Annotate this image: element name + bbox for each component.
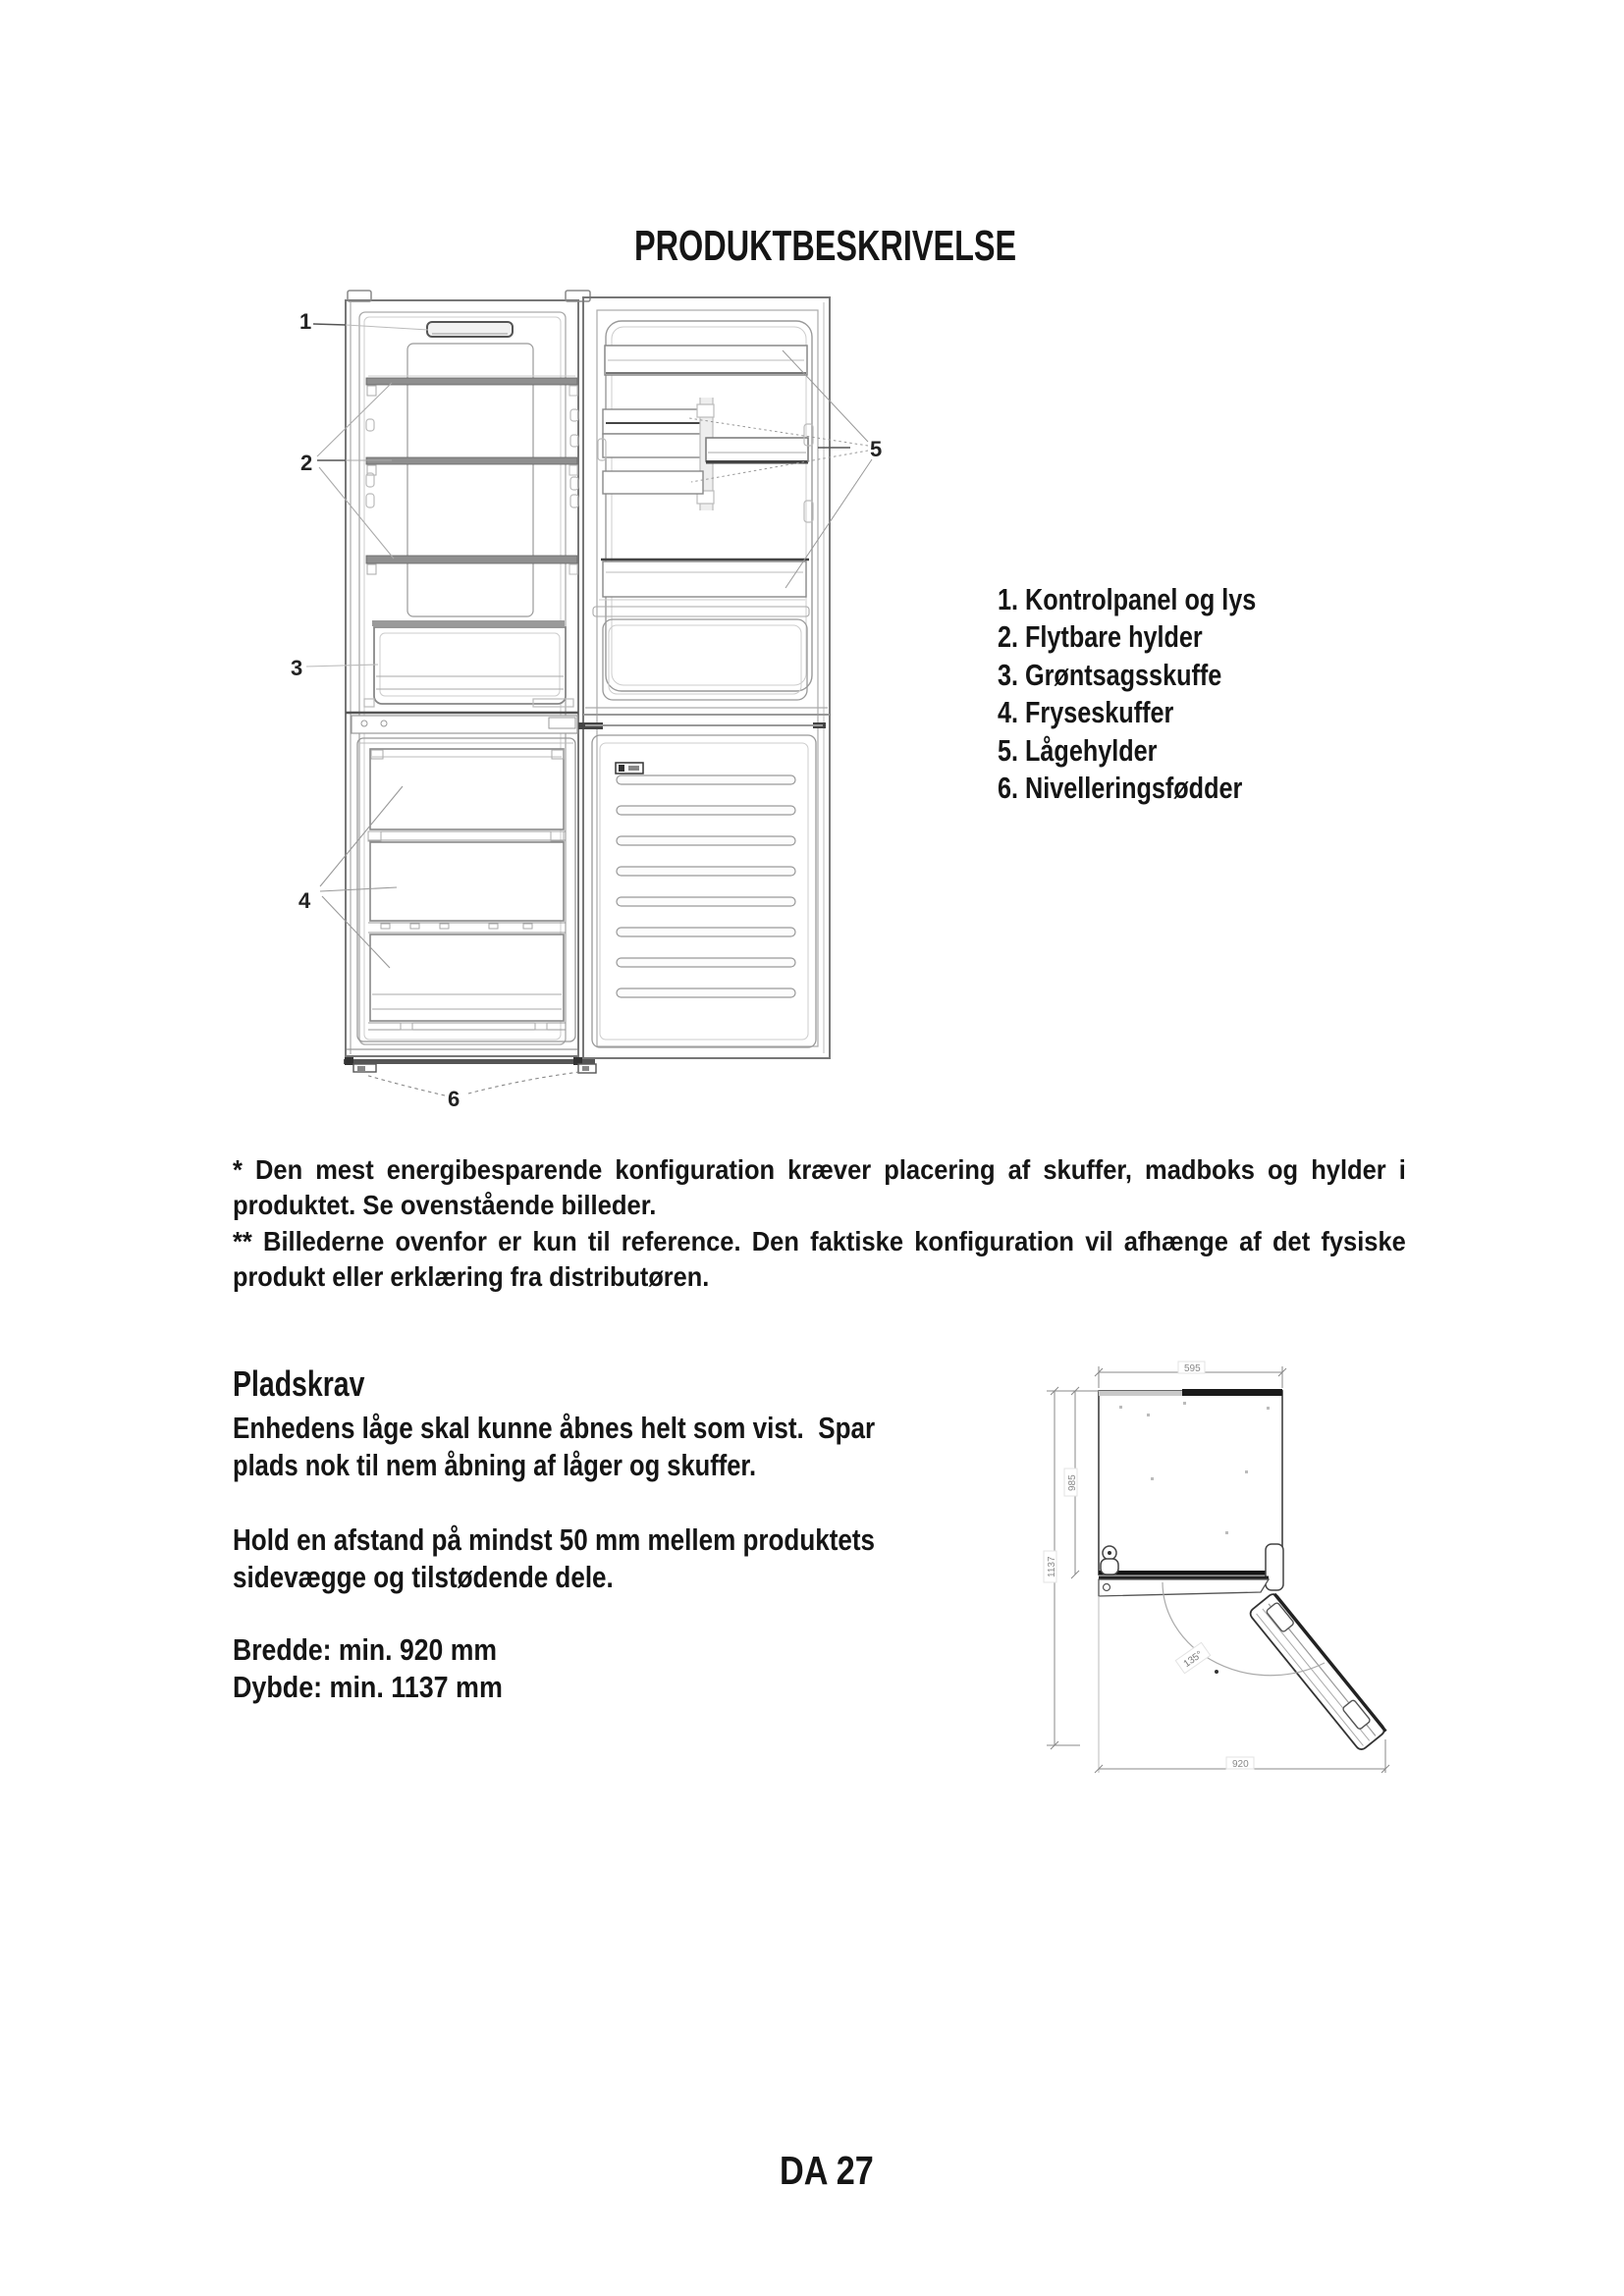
svg-text:985: 985 [1067, 1474, 1078, 1491]
svg-text:4: 4 [298, 888, 311, 913]
svg-text:1: 1 [299, 309, 311, 334]
svg-text:595: 595 [1184, 1363, 1201, 1374]
svg-text:3: 3 [291, 656, 302, 680]
svg-text:1137: 1137 [1047, 1556, 1057, 1577]
svg-text:6: 6 [448, 1087, 460, 1111]
svg-text:2: 2 [300, 451, 312, 475]
svg-text:5: 5 [870, 437, 882, 461]
svg-text:920: 920 [1232, 1759, 1249, 1770]
